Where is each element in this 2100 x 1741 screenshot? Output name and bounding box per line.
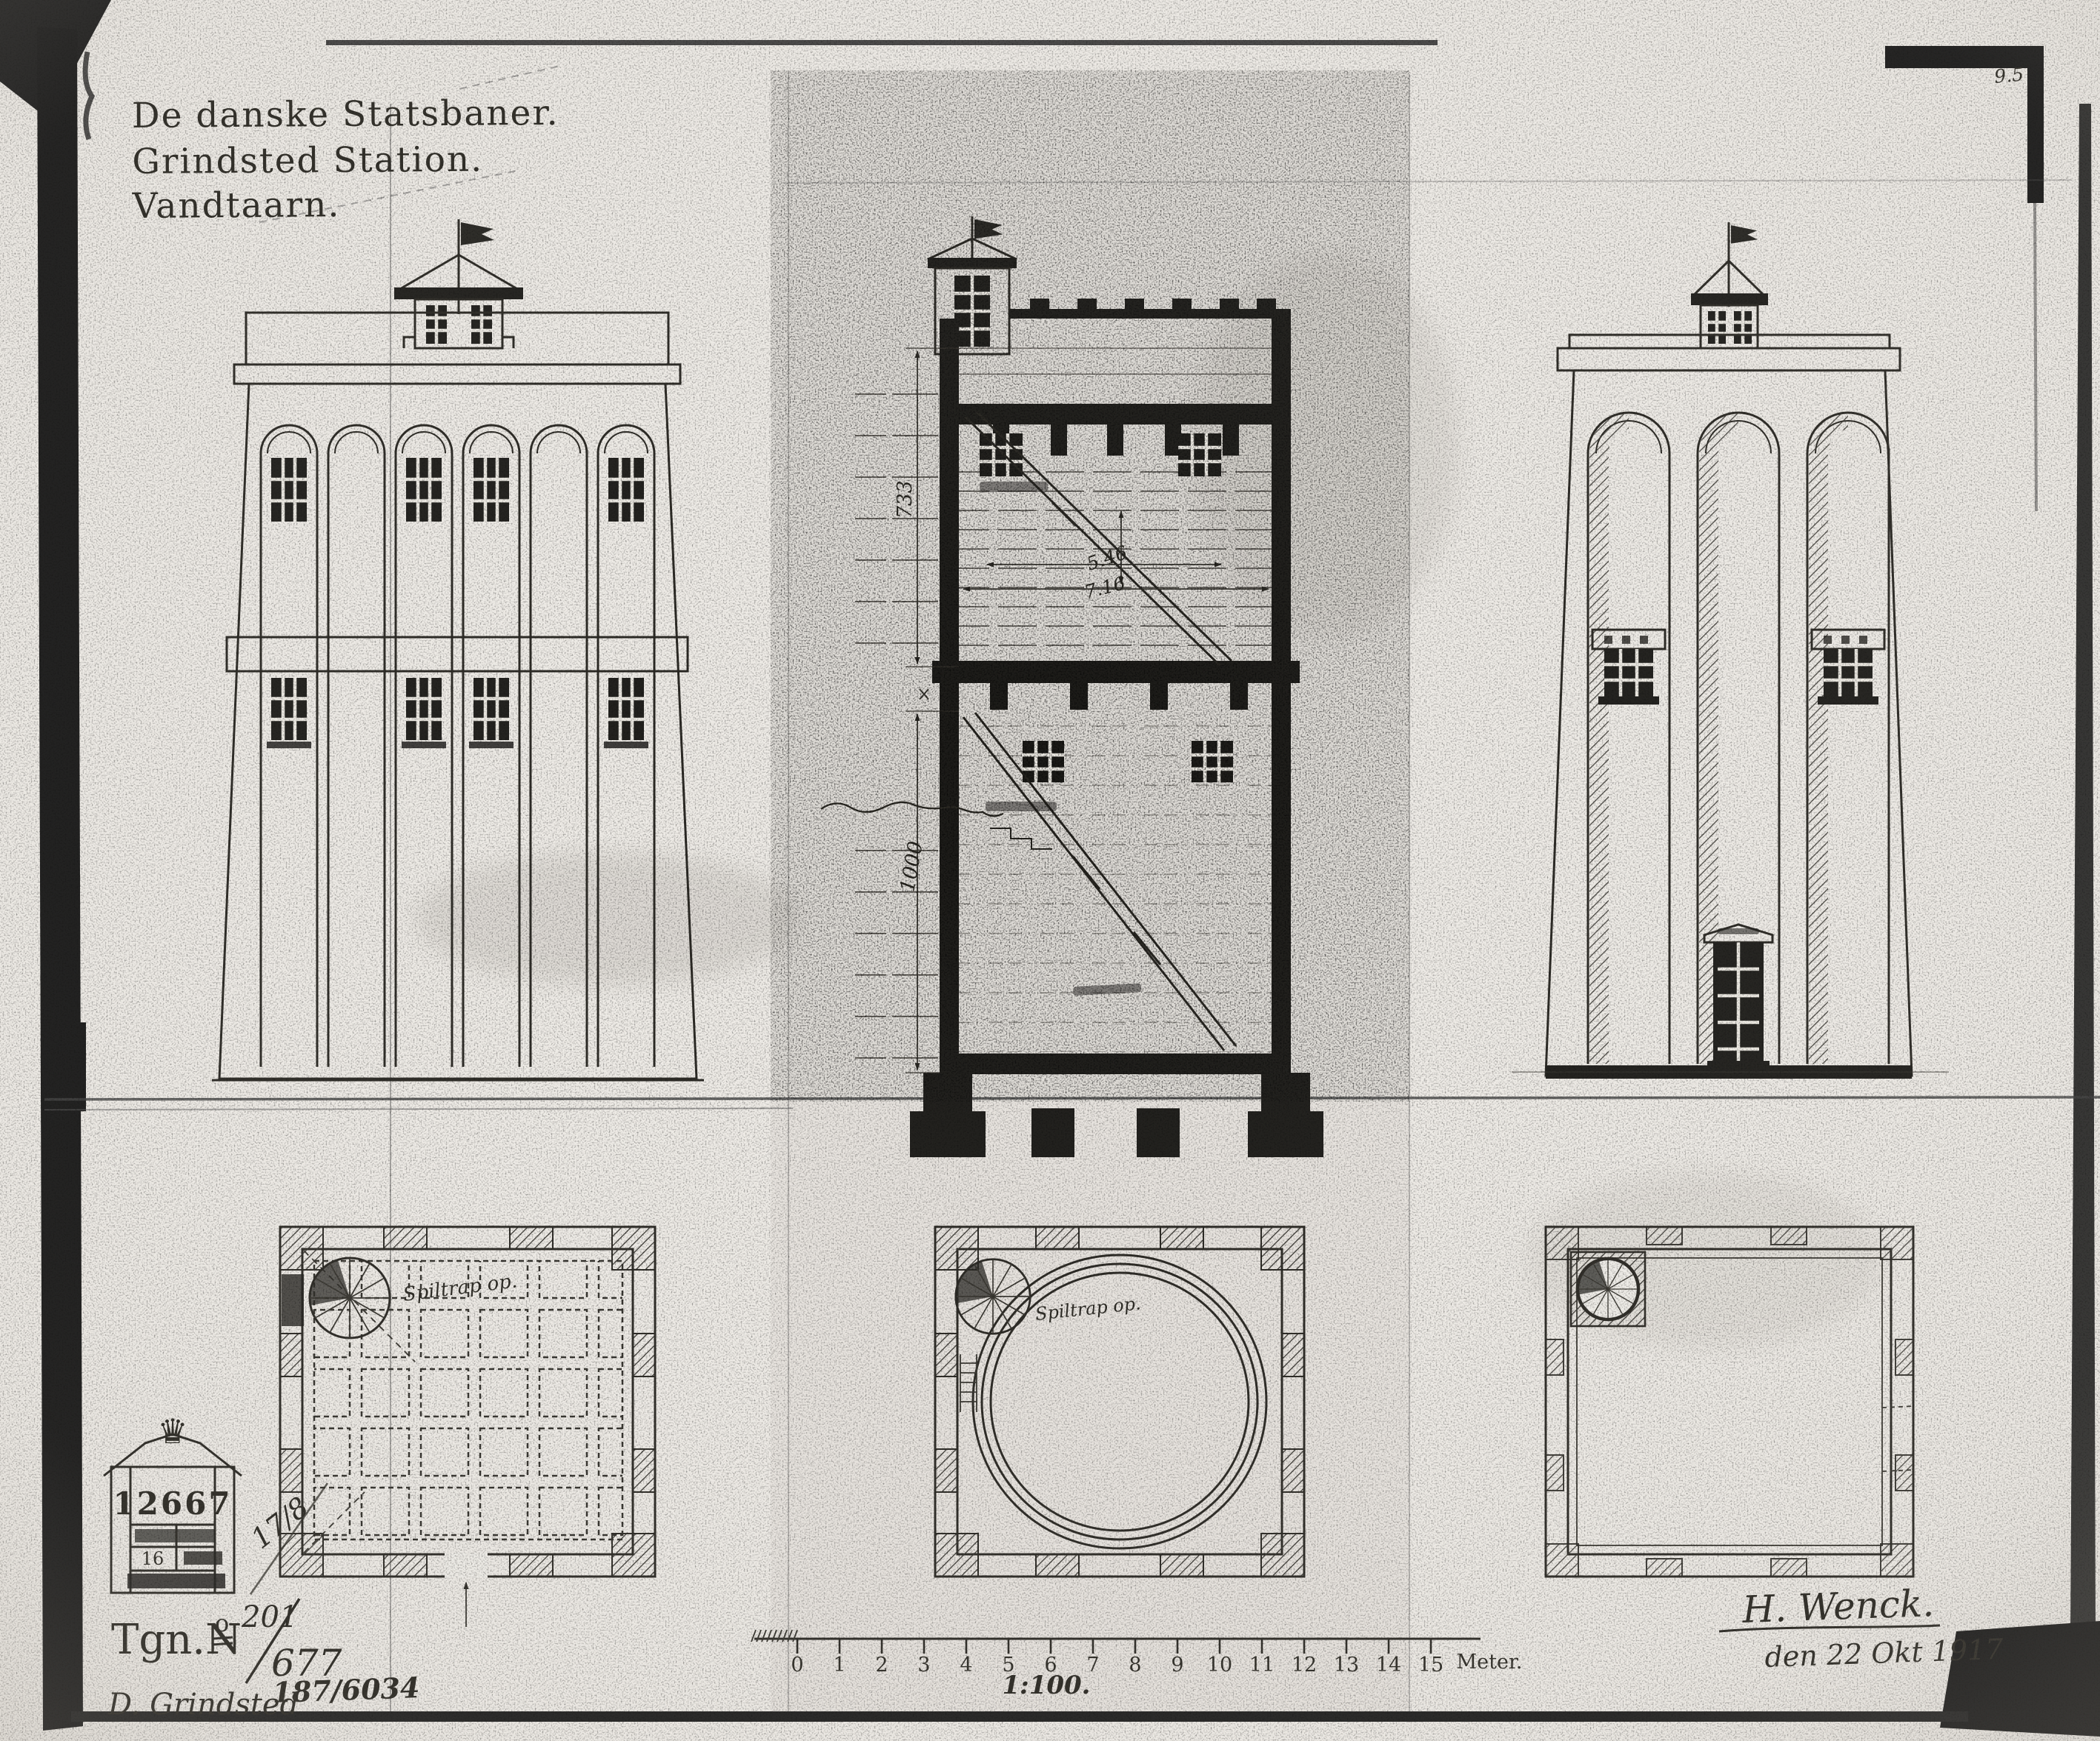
- scanned-drawing-sheet: De danske Statsbaner. Grindsted Station.…: [0, 0, 2100, 1741]
- vignette: [0, 0, 2100, 1741]
- blueprint-canvas: De danske Statsbaner. Grindsted Station.…: [0, 0, 2100, 1741]
